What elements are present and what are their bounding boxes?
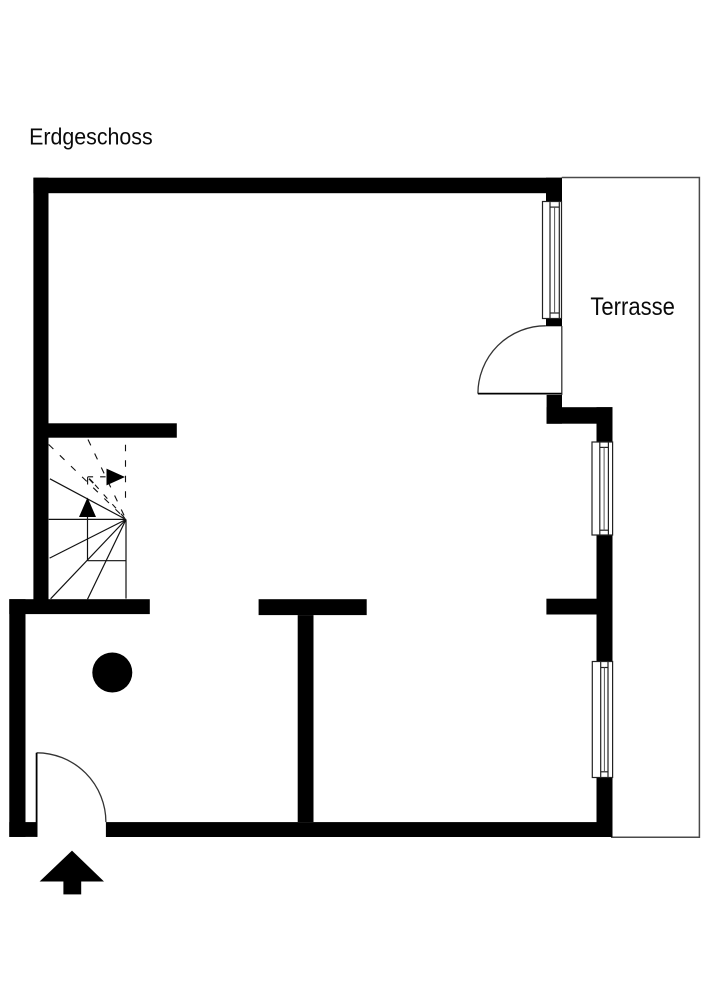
svg-text:Erdgeschoss: Erdgeschoss	[29, 123, 153, 149]
svg-text:Terrasse: Terrasse	[590, 293, 675, 321]
